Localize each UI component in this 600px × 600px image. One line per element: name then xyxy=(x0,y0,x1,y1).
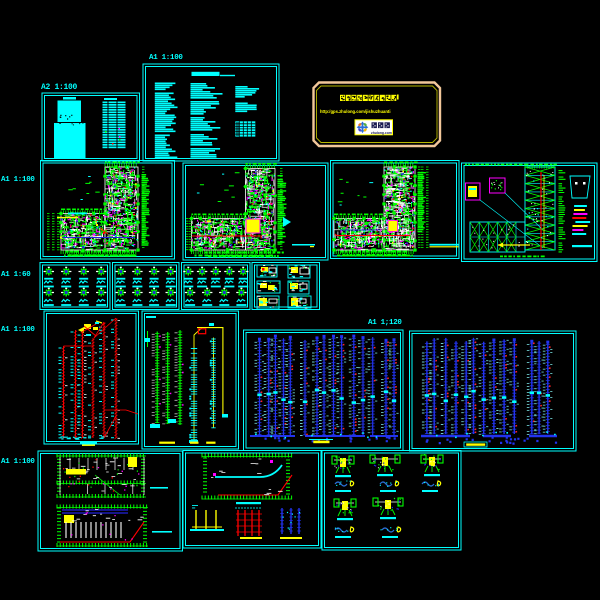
svg-text:A2 1:100: A2 1:100 xyxy=(41,83,78,92)
svg-text:A1 1;120: A1 1;120 xyxy=(368,319,402,327)
svg-text:zhulong.com: zhulong.com xyxy=(371,131,392,135)
svg-text:A1 1:100: A1 1:100 xyxy=(1,176,35,184)
svg-text:A1 1:100: A1 1:100 xyxy=(1,326,35,334)
svg-text:A1 1:60: A1 1:60 xyxy=(1,271,31,279)
svg-text:A1 1:100: A1 1:100 xyxy=(149,54,183,62)
svg-text:http:/gps.zhulong.com/jishuzhu: http:/gps.zhulong.com/jishuzhuanti xyxy=(320,109,390,114)
svg-text:A1 1:100: A1 1:100 xyxy=(1,458,35,466)
